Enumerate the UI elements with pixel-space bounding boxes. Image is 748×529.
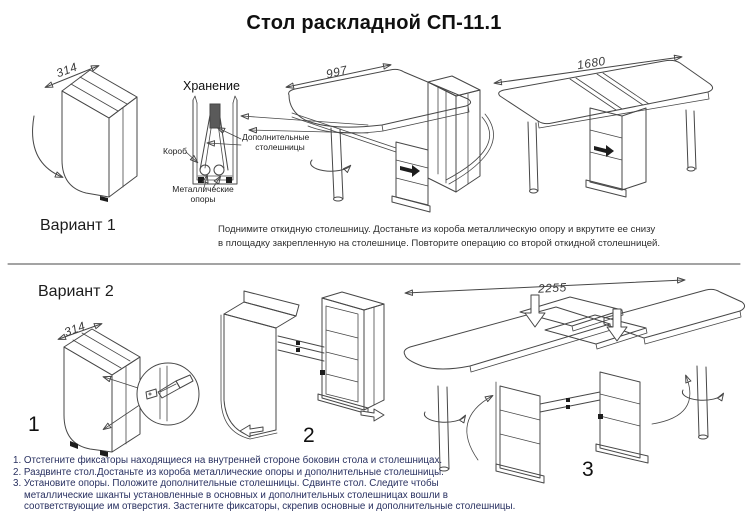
storage-detail-drawing (186, 96, 241, 188)
leader-arrow (104, 404, 141, 429)
foot (226, 177, 232, 183)
variant1-open-table-drawing (495, 57, 713, 197)
rotation-arrow-icon (424, 412, 465, 422)
variant1-note-line2: в площадку закрепленную на столешнице. П… (218, 237, 660, 251)
step-number-1: 1 (28, 413, 40, 437)
assembly-instructions: 1. Отстегните фиксаторы находящиеся на в… (13, 455, 515, 513)
rotation-arrow-icon (311, 160, 350, 171)
storage-label-box: Короб (163, 146, 187, 156)
variant1-folded-table-drawing (33, 66, 137, 202)
instruction-sheet: Стол раскладной СП-11.1 314 997 1680 Хра… (0, 0, 748, 529)
latch-dot (320, 370, 325, 375)
step-number-3: 3 (582, 458, 594, 482)
instruction-line-1: 1. Отстегните фиксаторы находящиеся на в… (13, 455, 515, 467)
slide-arrow-icon (361, 409, 384, 421)
dowel (566, 398, 570, 402)
step-number-2: 2 (303, 424, 315, 448)
swing-arrow-icon (652, 376, 690, 424)
instruction-line-3: 3. Установите опоры. Положите дополнител… (13, 478, 515, 490)
storage-label-extra-tops: Дополнительные столешницы (242, 132, 318, 152)
variant2-open-table-drawing (404, 280, 744, 483)
takeout-arrows (242, 116, 368, 133)
storage-label-supports-line2: опоры (170, 194, 236, 204)
instruction-line-5: соответствующие им отверстия. Застегните… (13, 501, 515, 513)
storage-title: Хранение (183, 79, 240, 93)
swing-arc (446, 114, 494, 184)
leader-arrow (218, 128, 241, 139)
variant1-label: Вариант 1 (40, 217, 116, 235)
instruction-line-2: 2. Раздвинте стол.Достаньте из короба ме… (13, 467, 515, 479)
dowel (296, 348, 300, 352)
dimension-label-2255: 2255 (538, 280, 567, 295)
insert-arrow-icon (400, 165, 420, 177)
variant2-folded-table-drawing (59, 324, 199, 457)
leader-arrow (104, 377, 138, 388)
storage-label-extra-tops-line1: Дополнительные (242, 132, 318, 142)
dowel (296, 341, 300, 345)
support-screw (210, 104, 220, 128)
latch-dot (598, 414, 603, 419)
variant1-note: Поднимите откидную столешницу. Достаньте… (218, 223, 660, 250)
instruction-line-4: металлические шканты установленные в осн… (13, 490, 515, 502)
fold-arrow-icon (33, 116, 62, 177)
storage-label-extra-tops-line2: столешницы (242, 142, 318, 152)
variant1-note-line1: Поднимите откидную столешницу. Достаньте… (218, 223, 660, 237)
line-art-canvas (0, 0, 748, 529)
variant2-sliding-table-drawing (221, 291, 384, 439)
storage-label-supports-line1: Металлические (170, 184, 236, 194)
rotation-arrow-icon (682, 390, 723, 400)
swing-arrow-icon (467, 396, 492, 460)
leader-arrow (186, 152, 197, 162)
dowel (566, 405, 570, 409)
page-title: Стол раскладной СП-11.1 (0, 12, 748, 35)
foot (198, 177, 204, 183)
storage-label-supports: Металлические опоры (170, 184, 236, 204)
variant2-label: Вариант 2 (38, 283, 114, 301)
